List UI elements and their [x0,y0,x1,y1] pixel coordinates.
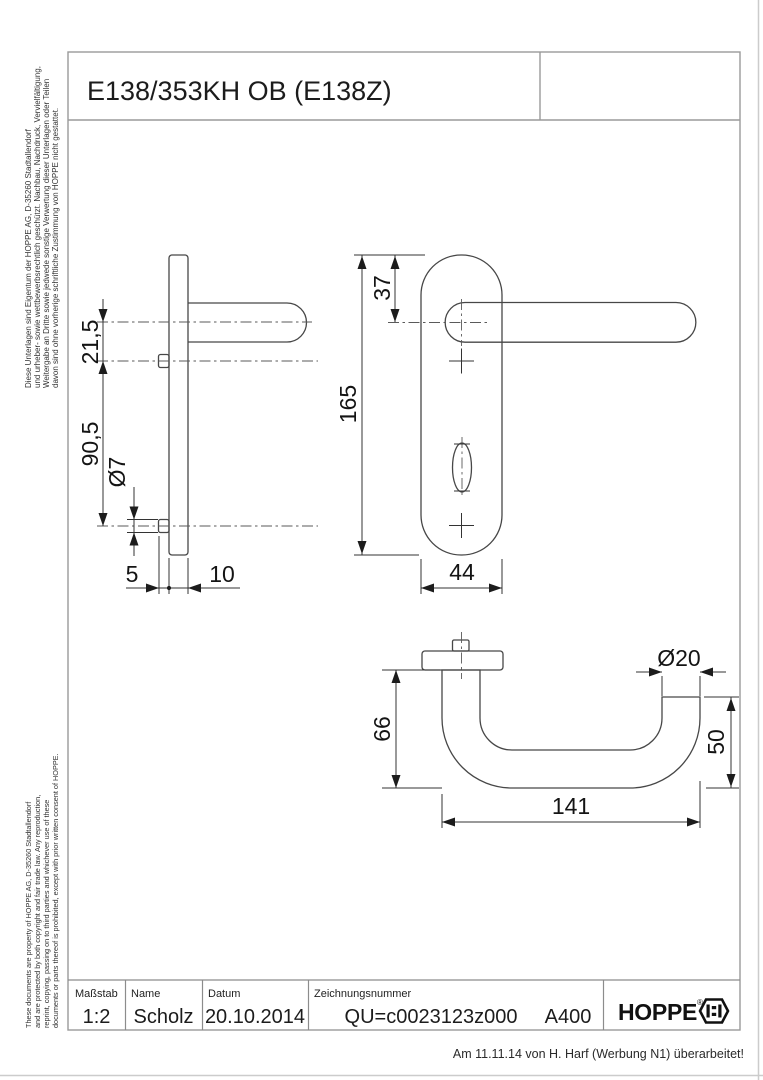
dim-label-141: 141 [552,793,590,819]
side-view-backplate [169,255,188,555]
dim-label-90-5: 90,5 [77,422,103,467]
drawing-number-label: Zeichnungsnummer [314,988,412,1000]
front-view: 37 165 44 [335,255,696,594]
date-value: 20.10.2014 [205,1006,305,1028]
legal-en-line3: reprint, copying, passing on to third pa… [42,800,51,1028]
scale-value: 1:2 [83,1006,111,1028]
dim-label-d20: Ø20 [657,645,700,671]
name-value: Scholz [133,1006,193,1028]
legal-en-line1: These documents are property of HOPPE AG… [24,801,33,1028]
name-label: Name [131,988,160,1000]
top-view-handle [442,670,700,788]
dim-label-50: 50 [703,729,729,755]
scale-label: Maßstab [75,988,118,1000]
drawing-number-value: QU=c0023123z000 [345,1006,518,1028]
hoppe-logo: HOPPE ® [618,998,728,1025]
dim-label-d7: Ø7 [104,457,130,488]
scan-page-edges [0,0,763,1080]
revision-note: Am 11.11.14 von H. Harf (Werbung N1) übe… [453,1047,744,1061]
hoppe-hexagon-logo-icon [700,1000,728,1023]
side-view-handle [188,303,307,342]
dim-label-21-5: 21,5 [77,320,103,365]
top-view-rose [422,651,503,670]
drawing-title: E138/353KH OB (E138Z) [87,76,392,106]
dim-label-165: 165 [335,385,361,423]
legal-de-line4: davon sind ohne vorherige schriftliche Z… [51,108,60,388]
dim-label-66: 66 [369,716,395,742]
drawing-canvas: E138/353KH OB (E138Z) Diese Unterlagen s… [0,0,763,1080]
hoppe-wordmark: HOPPE [618,999,697,1025]
legal-en-line4: documents or parts thereof is prohibited… [51,753,60,1028]
dim-label-37: 37 [369,275,395,301]
technical-drawing-sheet: E138/353KH OB (E138Z) Diese Unterlagen s… [0,0,763,1080]
top-view: 66 141 Ø20 50 [369,632,739,828]
front-view-handle [445,303,696,343]
date-label: Datum [208,988,240,1000]
legal-en-line2: and are protected by both copyright and … [33,795,42,1028]
legal-de-line1: Diese Unterlagen sind Eigentum der HOPPE… [24,128,33,388]
top-view-spindle [453,640,470,651]
legal-text-german: Diese Unterlagen sind Eigentum der HOPPE… [24,66,60,388]
side-view: 21,5 90,5 Ø7 5 10 [77,255,318,594]
dim-label-44: 44 [449,559,475,585]
title-block: Maßstab 1:2 Name Scholz Datum 20.10.2014… [68,980,740,1030]
legal-de-line2: und urheber- sowie wettbewerbsrechtlich … [33,66,42,388]
dim-label-10: 10 [209,561,235,587]
revision-code: A400 [545,1006,592,1028]
dim-label-5: 5 [126,561,139,587]
legal-de-line3: Weitergabe an Dritte sowie jedwede sonst… [42,79,51,388]
legal-text-english: These documents are property of HOPPE AG… [24,753,60,1028]
